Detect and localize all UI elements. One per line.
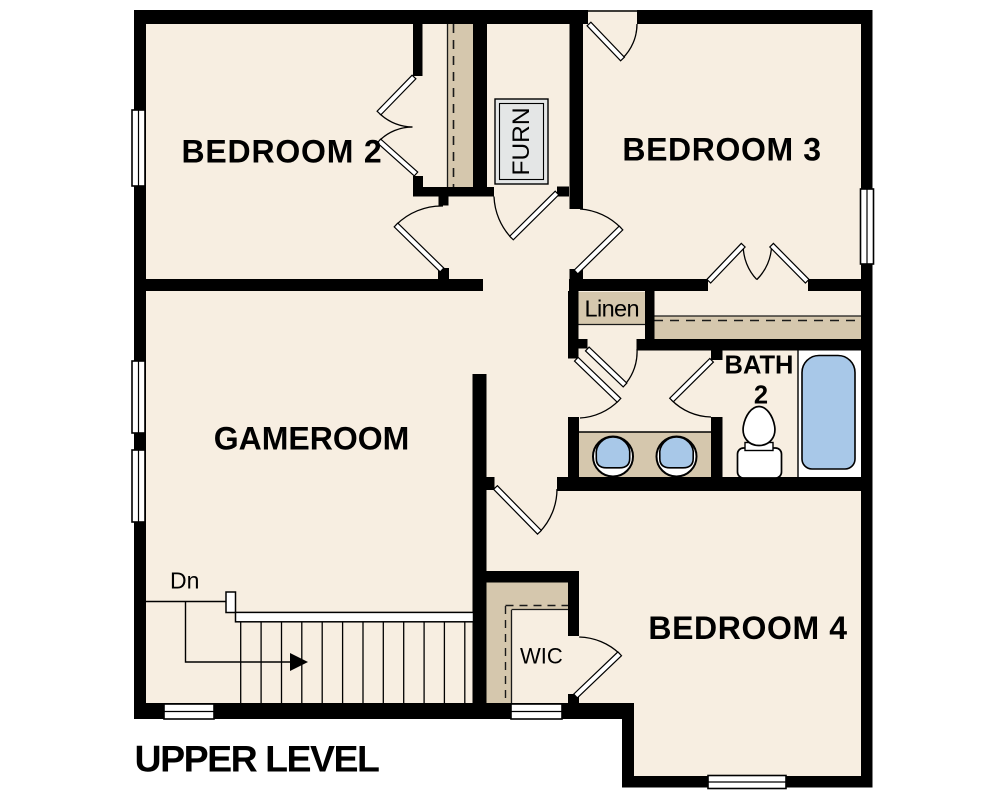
svg-text:FURN: FURN <box>508 107 535 175</box>
svg-text:BEDROOM 4: BEDROOM 4 <box>648 610 847 646</box>
svg-text:BATH: BATH <box>725 352 794 380</box>
svg-text:Linen: Linen <box>585 296 640 322</box>
svg-text:BEDROOM 2: BEDROOM 2 <box>182 134 383 170</box>
svg-text:Dn: Dn <box>170 568 199 594</box>
svg-text:GAMEROOM: GAMEROOM <box>214 421 410 457</box>
svg-text:WIC: WIC <box>520 644 563 669</box>
svg-text:UPPER LEVEL: UPPER LEVEL <box>135 738 380 780</box>
svg-text:BEDROOM 3: BEDROOM 3 <box>622 132 821 168</box>
svg-text:2: 2 <box>754 382 768 410</box>
